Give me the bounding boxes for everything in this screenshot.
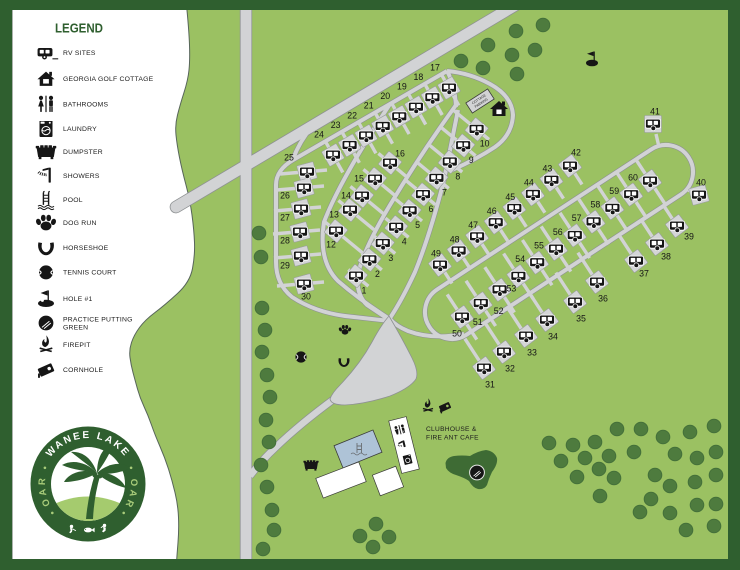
- svg-text:48: 48: [450, 234, 460, 244]
- svg-text:R: R: [37, 478, 48, 486]
- svg-text:2: 2: [375, 269, 380, 279]
- svg-text:1: 1: [362, 285, 367, 295]
- svg-text:22: 22: [347, 110, 357, 120]
- svg-text:50: 50: [452, 328, 462, 338]
- svg-text:12: 12: [326, 239, 336, 249]
- svg-text:14: 14: [341, 190, 351, 200]
- svg-text:7: 7: [442, 188, 447, 198]
- svg-text:23: 23: [331, 120, 341, 130]
- svg-text:52: 52: [494, 306, 504, 316]
- svg-text:10: 10: [480, 139, 490, 149]
- svg-text:45: 45: [505, 192, 515, 202]
- svg-text:53: 53: [507, 284, 517, 294]
- svg-text:18: 18: [414, 72, 424, 82]
- svg-text:32: 32: [505, 363, 515, 373]
- svg-text:27: 27: [280, 212, 290, 222]
- svg-text:55: 55: [534, 240, 544, 250]
- svg-text:46: 46: [487, 206, 497, 216]
- svg-text:20: 20: [380, 91, 390, 101]
- svg-text:47: 47: [468, 220, 478, 230]
- svg-text:56: 56: [553, 227, 563, 237]
- svg-text:13: 13: [329, 209, 339, 219]
- svg-text:25: 25: [284, 152, 294, 162]
- svg-text:54: 54: [515, 254, 525, 264]
- svg-text:5: 5: [415, 220, 420, 230]
- svg-text:3: 3: [388, 253, 393, 263]
- svg-text:CORNHOLE: CORNHOLE: [63, 367, 104, 374]
- svg-text:44: 44: [524, 178, 534, 188]
- svg-text:FIREPIT: FIREPIT: [63, 342, 91, 349]
- svg-text:30: 30: [301, 291, 311, 301]
- svg-text:4: 4: [402, 237, 407, 247]
- svg-text:40: 40: [696, 177, 706, 187]
- svg-text:RV SITES: RV SITES: [63, 50, 96, 57]
- svg-text:57: 57: [572, 213, 582, 223]
- svg-text:8: 8: [455, 171, 460, 181]
- svg-text:DUMPSTER: DUMPSTER: [63, 149, 103, 156]
- svg-text:15: 15: [354, 173, 364, 183]
- svg-text:34: 34: [548, 331, 558, 341]
- svg-text:FIRE ANT CAFE: FIRE ANT CAFE: [426, 435, 479, 442]
- svg-text:9: 9: [469, 155, 474, 165]
- svg-text:19: 19: [397, 82, 407, 92]
- svg-text:BATHROOMS: BATHROOMS: [63, 102, 109, 109]
- svg-text:LAUNDRY: LAUNDRY: [63, 126, 97, 133]
- svg-text:17: 17: [430, 62, 440, 72]
- svg-text:29: 29: [280, 260, 290, 270]
- svg-text:38: 38: [661, 251, 671, 261]
- svg-text:28: 28: [280, 235, 290, 245]
- svg-text:31: 31: [485, 379, 495, 389]
- svg-text:O: O: [128, 479, 139, 487]
- svg-text:16: 16: [395, 148, 405, 158]
- svg-text:51: 51: [473, 317, 483, 327]
- svg-text:26: 26: [280, 190, 290, 200]
- svg-text:POOL: POOL: [63, 197, 83, 204]
- svg-text:43: 43: [543, 164, 553, 174]
- svg-text:6: 6: [429, 204, 434, 214]
- svg-text:33: 33: [527, 347, 537, 357]
- svg-text:36: 36: [598, 293, 608, 303]
- svg-text:TENNIS COURT: TENNIS COURT: [63, 270, 117, 277]
- svg-text:59: 59: [609, 186, 619, 196]
- svg-text:41: 41: [650, 106, 660, 116]
- svg-text:SHOWERS: SHOWERS: [63, 173, 100, 180]
- svg-text:58: 58: [591, 200, 601, 210]
- svg-text:39: 39: [684, 231, 694, 241]
- svg-text:DOG RUN: DOG RUN: [63, 220, 97, 227]
- svg-text:35: 35: [576, 313, 586, 323]
- svg-text:HORSESHOE: HORSESHOE: [63, 245, 109, 252]
- svg-text:60: 60: [628, 172, 638, 182]
- svg-text:24: 24: [314, 129, 324, 139]
- svg-text:37: 37: [639, 268, 649, 278]
- svg-text:49: 49: [431, 248, 441, 258]
- svg-text:CLUBHOUSE &: CLUBHOUSE &: [426, 426, 477, 433]
- svg-text:21: 21: [364, 101, 374, 111]
- svg-text:42: 42: [571, 147, 581, 157]
- svg-text:LEGEND: LEGEND: [55, 22, 103, 36]
- svg-text:PRACTICE PUTTING: PRACTICE PUTTING: [63, 317, 133, 324]
- svg-text:GREEN: GREEN: [63, 325, 88, 332]
- svg-text:GEORGIA GOLF COTTAGE: GEORGIA GOLF COTTAGE: [63, 76, 154, 83]
- svg-text:HOLE #1: HOLE #1: [63, 296, 93, 303]
